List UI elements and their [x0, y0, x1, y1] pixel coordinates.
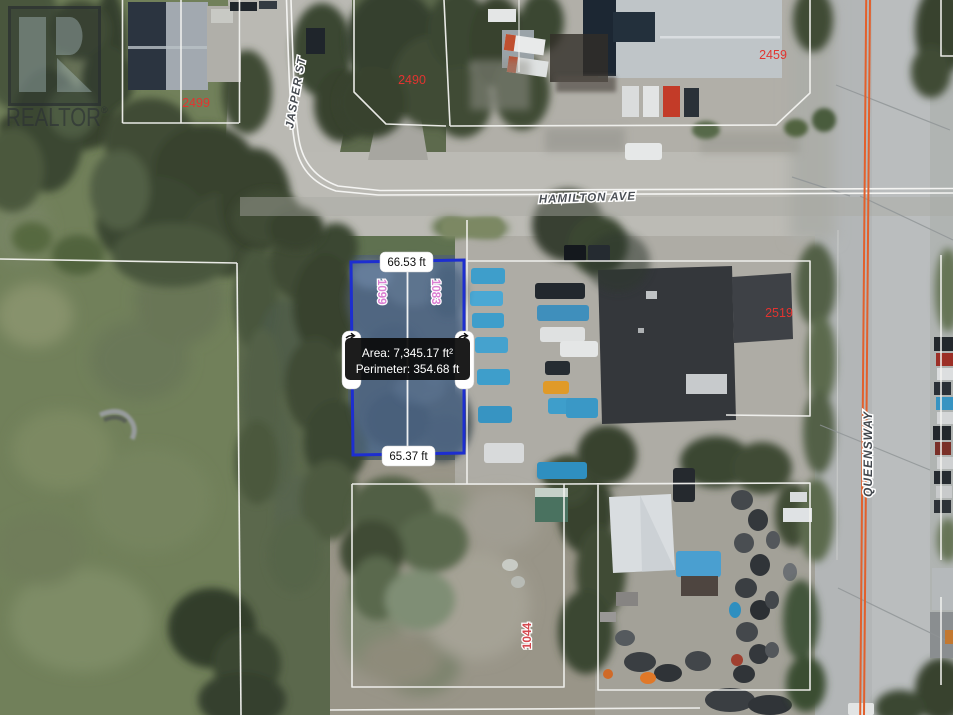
svg-text:1099: 1099	[375, 279, 387, 305]
svg-text:66.53 ft: 66.53 ft	[387, 257, 426, 269]
svg-text:REALTOR: REALTOR	[6, 102, 101, 132]
svg-text:2499: 2499	[182, 96, 210, 110]
svg-text:2459: 2459	[759, 48, 787, 62]
svg-text:1044: 1044	[520, 622, 534, 649]
svg-text:65.37 ft: 65.37 ft	[389, 451, 428, 463]
svg-text:2519: 2519	[765, 306, 793, 320]
svg-text:Area: 7,345.17 ft²: Area: 7,345.17 ft²	[362, 346, 453, 360]
svg-text:Perimeter: 354.68 ft: Perimeter: 354.68 ft	[356, 362, 460, 376]
svg-text:1083: 1083	[429, 279, 441, 305]
svg-text:®: ®	[101, 105, 108, 115]
svg-text:2490: 2490	[398, 73, 426, 87]
svg-text:QUEENSWAY: QUEENSWAY	[861, 411, 875, 497]
